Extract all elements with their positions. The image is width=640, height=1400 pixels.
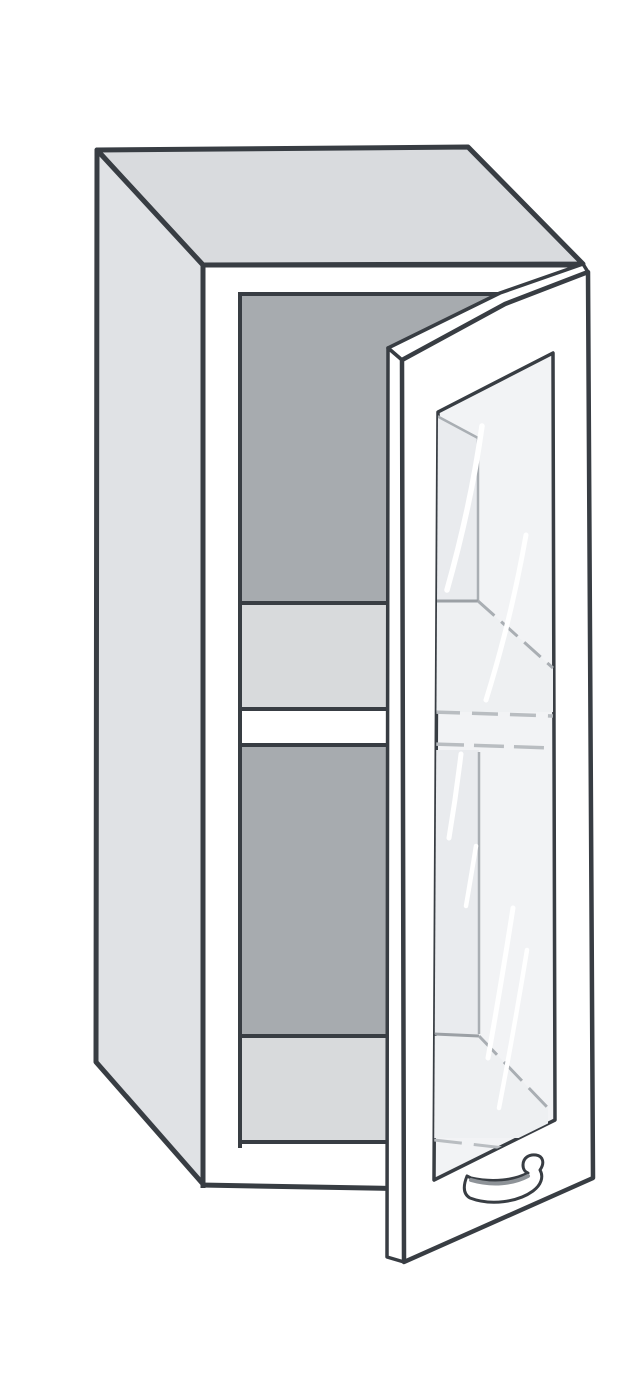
page bbox=[0, 0, 640, 1400]
glass-view-floor-top-line bbox=[434, 1034, 479, 1036]
glass-view-back-panel-upper bbox=[434, 414, 478, 601]
cabinet-left-side bbox=[96, 150, 203, 1184]
cabinet-line-drawing bbox=[0, 0, 640, 1400]
wall-cabinet-illustration bbox=[0, 0, 640, 1400]
